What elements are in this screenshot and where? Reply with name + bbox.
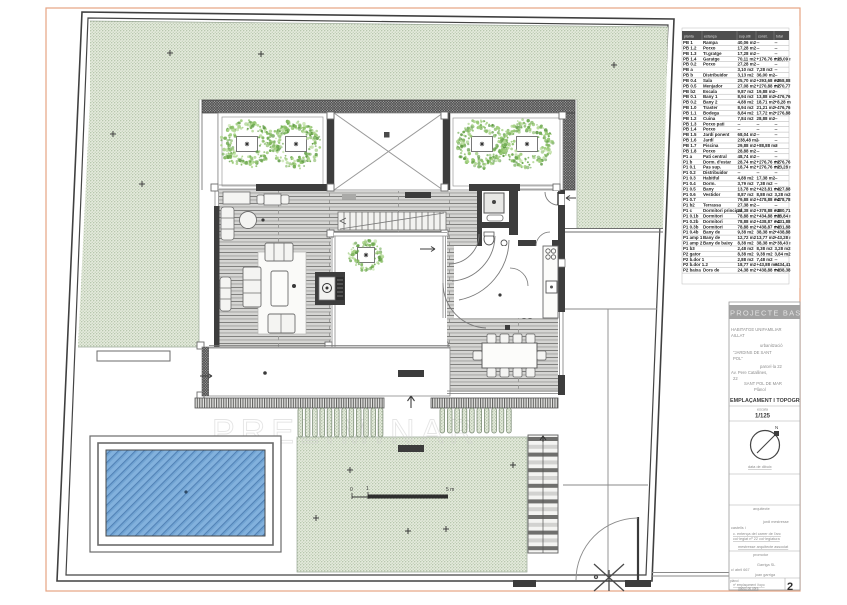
svg-text:78,88 m2: 78,88 m2 [738,219,757,224]
svg-text:Dormitori principal: Dormitori principal [703,208,742,213]
svg-text:PB 1.2: PB 1.2 [683,45,697,50]
svg-text:castells i: castells i [731,526,746,530]
svg-text:Dormitori: Dormitori [703,219,723,224]
svg-text:AILLAT: AILLAT [731,333,745,338]
svg-text:Porxo pati: Porxo pati [703,121,724,126]
svg-text:70,11 m2: 70,11 m2 [738,56,757,61]
svg-text:Cuina: Cuina [703,116,716,121]
svg-text:5 m: 5 m [446,487,454,493]
svg-text:8,87 m2: 8,87 m2 [738,192,755,197]
svg-text:Jardí ponent: Jardí ponent [703,132,730,137]
svg-text:19,88 m2: 19,88 m2 [757,89,776,94]
svg-text:3,10 m2: 3,10 m2 [738,67,755,72]
svg-text:Jardí: Jardí [703,138,714,143]
svg-text:P1 0.1b: P1 0.1b [683,214,699,219]
svg-text:Vestidor: Vestidor [703,192,721,197]
svg-text:68,04 m2: 68,04 m2 [738,132,757,137]
svg-text:Sala: Sala [703,78,713,83]
svg-text:PB 1.1: PB 1.1 [683,111,697,116]
svg-text:3,84 m2: 3,84 m2 [775,251,792,256]
svg-text:arquitecte: arquitecte [753,507,770,511]
svg-text:P2 b.dor 1: P2 b.dor 1 [683,257,705,262]
svg-text:PB 0.5: PB 0.5 [683,83,697,88]
svg-text:P2 baixa: P2 baixa [683,268,701,273]
svg-text:PB b2: PB b2 [683,89,696,94]
svg-text:2: 2 [787,581,793,593]
svg-text:total: total [776,35,783,39]
svg-text:8,94 m2: 8,94 m2 [738,94,755,99]
svg-text:7,38 m2: 7,38 m2 [757,181,774,186]
svg-text:17,28 m2: 17,28 m2 [738,51,757,56]
svg-text:13,88 m2: 13,88 m2 [757,94,776,99]
svg-text:7,84 m2: 7,84 m2 [738,116,755,121]
svg-text:36,00 m2: 36,00 m2 [757,73,776,78]
svg-text:Av. Pere Catallines,: Av. Pere Catallines, [731,370,767,375]
svg-text:P1 0.7: P1 0.7 [683,197,696,202]
svg-text:P1 0.3b: P1 0.3b [683,224,699,229]
svg-text:PB a: PB a [683,67,693,72]
svg-text:27,38 m2: 27,38 m2 [738,203,757,208]
svg-text:P1 amp 2: P1 amp 2 [683,241,703,246]
svg-text:Dorm. d'estar: Dorm. d'estar [703,159,731,164]
svg-text:38,38 m2: 38,38 m2 [757,230,776,235]
svg-text:P1 0.4: P1 0.4 [683,181,696,186]
svg-text:PROJECTE BAS: PROJECTE BAS [730,309,802,318]
svg-text:8,88 m2: 8,88 m2 [757,192,774,197]
svg-text:Garriga SL: Garriga SL [757,563,775,567]
svg-text:7,28 m2: 7,28 m2 [757,67,774,72]
svg-text:dades de obra: dades de obra [738,587,759,591]
svg-text:8,84 m2: 8,84 m2 [738,111,755,116]
svg-text:22: 22 [733,376,738,381]
svg-text:col·legiat nº 22 col·legiatur: col·legiat nº 22 col·legiatura [733,537,781,541]
svg-text:9,38 m2: 9,38 m2 [738,230,755,235]
svg-text:24,38 m2: 24,38 m2 [738,268,757,273]
svg-text:P1 0.4b: P1 0.4b [683,230,699,235]
svg-text:18,71 m2: 18,71 m2 [757,100,776,105]
svg-text:c. entença del carrer de l'a: c. entença del carrer de l'arc [733,532,781,536]
svg-text:PB 1.8: PB 1.8 [683,148,697,153]
svg-text:4,88 m2: 4,88 m2 [738,176,755,181]
svg-text:PB 1: PB 1 [683,40,693,45]
svg-text:parcel·la 22: parcel·la 22 [760,364,783,369]
svg-text:Porxo: Porxo [703,45,716,50]
svg-text:Escala: Escala [703,89,717,94]
svg-text:sup.útil: sup.útil [739,35,751,39]
svg-text:Bany: Bany [703,186,714,191]
svg-text:P1 a: P1 a [683,154,693,159]
svg-text:Porxo: Porxo [703,127,716,132]
svg-text:8,38 m2: 8,38 m2 [757,246,774,251]
svg-text:P1 b3: P1 b3 [683,246,695,251]
svg-text:PB 1.7: PB 1.7 [683,143,697,148]
svg-text:P2 gator: P2 gator [683,251,701,256]
svg-text:jordi mestresse: jordi mestresse [762,520,789,524]
svg-text:PB 1.6: PB 1.6 [683,138,697,143]
svg-text:2,88 m2: 2,88 m2 [738,257,755,262]
svg-text:17,72 m2: 17,72 m2 [757,111,776,116]
svg-text:escala: escala [757,408,769,412]
svg-text:Piscina: Piscina [703,143,719,148]
svg-text:estança: estança [704,35,717,39]
svg-text:Menjador: Menjador [703,83,723,88]
svg-text:3,28 m2: 3,28 m2 [775,192,792,197]
svg-text:0: 0 [350,487,353,493]
svg-text:13,77 m2: 13,77 m2 [757,235,776,240]
svg-text:18,74 m2: 18,74 m2 [738,165,757,170]
svg-text:28,88 m2: 28,88 m2 [738,148,757,153]
svg-text:PB 1.3: PB 1.3 [683,51,697,56]
svg-text:78,88 m2: 78,88 m2 [738,214,757,219]
svg-text:PB b: PB b [683,73,693,78]
svg-text:P1 b2: P1 b2 [683,203,695,208]
svg-text:"JARDINS DE SANT: "JARDINS DE SANT [733,350,772,355]
svg-text:P1 0.1: P1 0.1 [683,165,696,170]
svg-text:Pas sup.: Pas sup. [703,165,721,170]
svg-text:8,38 m2: 8,38 m2 [738,241,755,246]
svg-text:Bany 1: Bany 1 [703,94,718,99]
svg-text:17,38 m2: 17,38 m2 [757,176,776,181]
svg-text:28,88 m2: 28,88 m2 [757,116,776,121]
svg-text:13,78 m2: 13,78 m2 [738,186,757,191]
svg-text:PB 0.2: PB 0.2 [683,62,697,67]
svg-text:P1 c: P1 c [683,208,693,213]
svg-text:28,74 m2: 28,74 m2 [738,159,757,164]
svg-text:urbanització: urbanització [760,343,783,348]
svg-text:P2 b.dor 1.2: P2 b.dor 1.2 [683,262,708,267]
svg-text:P1 0.6: P1 0.6 [683,192,696,197]
svg-text:Porxo: Porxo [703,62,716,67]
svg-text:P1 0.2: P1 0.2 [683,170,696,175]
svg-text:data de dibuix: data de dibuix [748,465,772,469]
svg-text:Dormitori: Dormitori [703,214,723,219]
svg-text:PB 1.4: PB 1.4 [683,56,697,61]
svg-text:mestresse arquitecte associa: mestresse arquitecte associat [738,545,789,549]
svg-text:Bodega: Bodega [703,111,720,116]
svg-text:PB 0.1: PB 0.1 [683,94,697,99]
svg-text:Dors de: Dors de [703,268,720,273]
svg-text:Habitful: Habitful [703,176,719,181]
svg-text:PB 1.4: PB 1.4 [683,127,697,132]
svg-text:25,70 m2: 25,70 m2 [738,78,757,83]
svg-text:38,38 m2: 38,38 m2 [757,241,776,246]
svg-text:29,88 m2: 29,88 m2 [738,143,757,148]
svg-text:PB 0.2: PB 0.2 [683,100,697,105]
svg-text:1: 1 [366,486,369,492]
svg-text:planta: planta [684,35,694,39]
svg-text:9,38 m2: 9,38 m2 [757,251,774,256]
svg-text:48,74 m2: 48,74 m2 [738,154,757,159]
svg-text:Terrassa: Terrassa [703,203,722,208]
svg-text:HABITATGE UNIFAMILIAR: HABITATGE UNIFAMILIAR [731,327,782,332]
svg-text:Distribuidor: Distribuidor [703,170,728,175]
svg-text:PB 1.0: PB 1.0 [683,105,697,110]
svg-text:8,38 m2: 8,38 m2 [738,251,755,256]
svg-text:Bany de: Bany de [703,230,721,235]
svg-text:Dorm.: Dorm. [703,181,716,186]
svg-text:Bany 2: Bany 2 [703,100,718,105]
svg-text:27,08 m2: 27,08 m2 [738,83,757,88]
svg-text:Distribuidor: Distribuidor [703,73,728,78]
svg-text:1/125: 1/125 [755,414,771,420]
svg-text:P1 0.2b: P1 0.2b [683,219,699,224]
svg-text:PB 1.3: PB 1.3 [683,121,697,126]
svg-text:27,28 m2: 27,28 m2 [738,62,757,67]
svg-text:21,21 m2: 21,21 m2 [757,105,776,110]
svg-text:Rampa: Rampa [703,40,718,45]
svg-text:2,48 m2: 2,48 m2 [738,246,755,251]
svg-text:Bany de: Bany de [703,235,721,240]
svg-text:EMPLAÇAMENT I TOPOGR: EMPLAÇAMENT I TOPOGR [730,398,800,404]
svg-text:23,38 m2: 23,38 m2 [738,208,757,213]
svg-text:78,88 m2: 78,88 m2 [738,224,757,229]
svg-text:3,79 m2: 3,79 m2 [738,181,755,186]
svg-text:Tr.gratge: Tr.gratge [703,51,722,56]
svg-text:4,88 m2: 4,88 m2 [738,100,755,105]
svg-text:SANT POL DE MAR: SANT POL DE MAR [744,381,782,386]
svg-text:Plànol: Plànol [754,387,766,392]
svg-text:POL": POL" [733,356,743,361]
svg-text:Bany de baixy: Bany de baixy [703,241,733,246]
svg-text:joan garriga: joan garriga [754,573,776,577]
svg-text:17,28 m2: 17,28 m2 [738,45,757,50]
svg-text:Porxo: Porxo [703,148,716,153]
svg-text:P1 0.5: P1 0.5 [683,186,696,191]
svg-text:Dormitori: Dormitori [703,224,723,229]
svg-text:12,72 m2: 12,72 m2 [738,235,757,240]
svg-text:7,48 m2: 7,48 m2 [757,257,774,262]
svg-text:8,94 m2: 8,94 m2 [738,105,755,110]
svg-text:const.: const. [758,35,768,39]
svg-text:PB 0.4: PB 0.4 [683,78,697,83]
svg-text:PB 1.5: PB 1.5 [683,132,697,137]
svg-text:18,77 m2: 18,77 m2 [738,262,757,267]
svg-text:c/ abril 667: c/ abril 667 [731,568,750,572]
svg-text:Garatge: Garatge [703,56,720,61]
svg-text:P1 0.3: P1 0.3 [683,176,696,181]
svg-text:Pati central: Pati central [703,154,727,159]
svg-text:40,06 m2: 40,06 m2 [738,40,757,45]
svg-text:promotor: promotor [753,553,769,557]
svg-text:3,13 m2: 3,13 m2 [738,73,755,78]
svg-text:PB 1.2: PB 1.2 [683,116,697,121]
svg-text:3,28 m2: 3,28 m2 [775,246,792,251]
svg-text:N: N [775,425,778,430]
svg-text:Traster: Traster [703,105,718,110]
svg-text:79,88 m2: 79,88 m2 [738,197,757,202]
svg-text:P1 amp 1: P1 amp 1 [683,235,703,240]
svg-text:P1 b: P1 b [683,159,693,164]
svg-text:9,87 m2: 9,87 m2 [738,89,755,94]
